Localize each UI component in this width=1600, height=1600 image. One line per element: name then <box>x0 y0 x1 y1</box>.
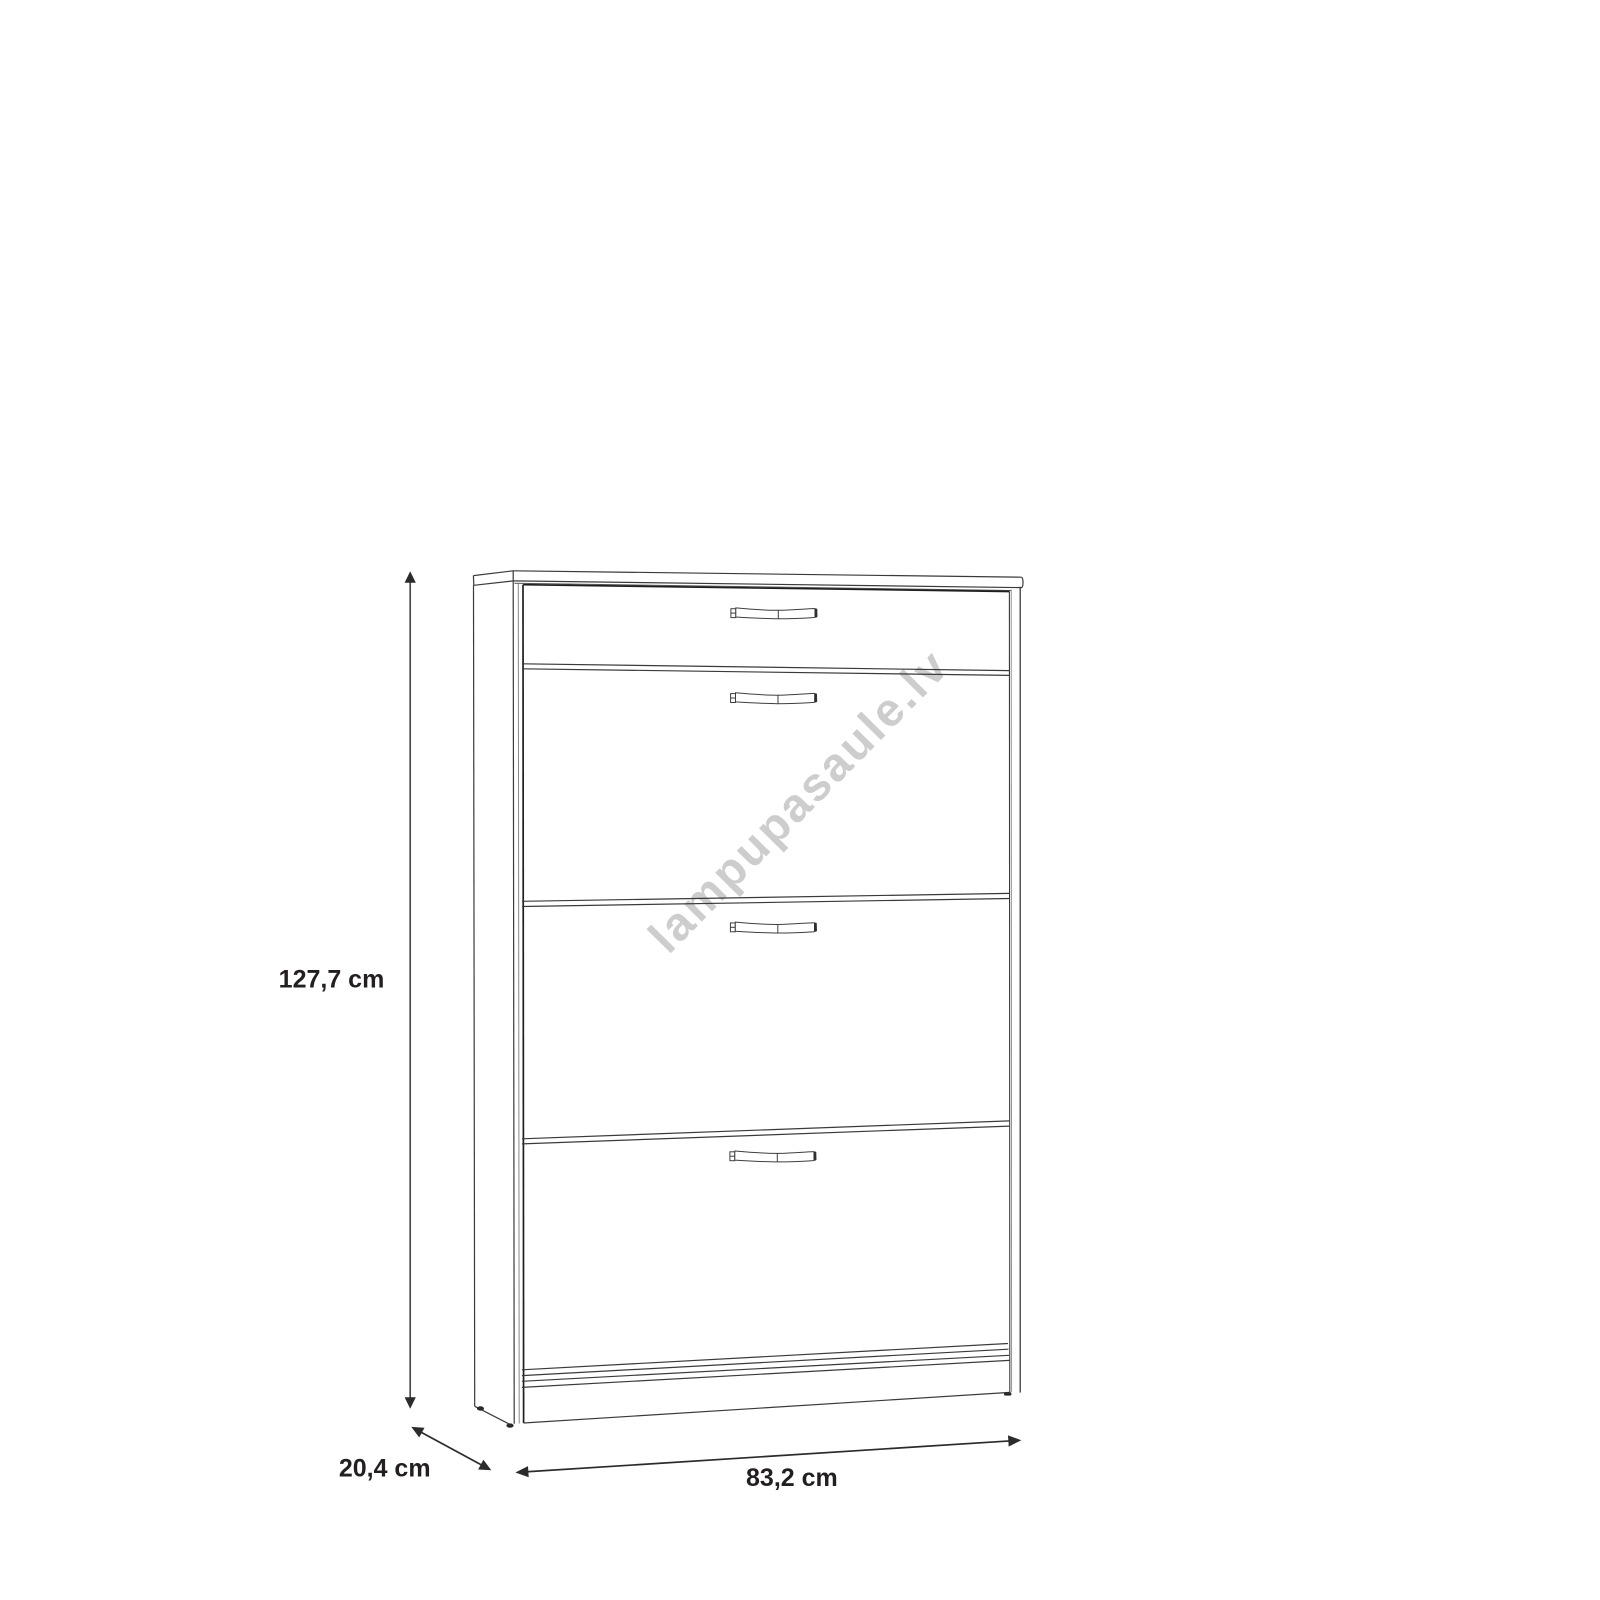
svg-text:127,7 cm: 127,7 cm <box>279 966 385 994</box>
svg-text:83,2 cm: 83,2 cm <box>746 1464 838 1492</box>
svg-text:20,4 cm: 20,4 cm <box>339 1454 431 1482</box>
